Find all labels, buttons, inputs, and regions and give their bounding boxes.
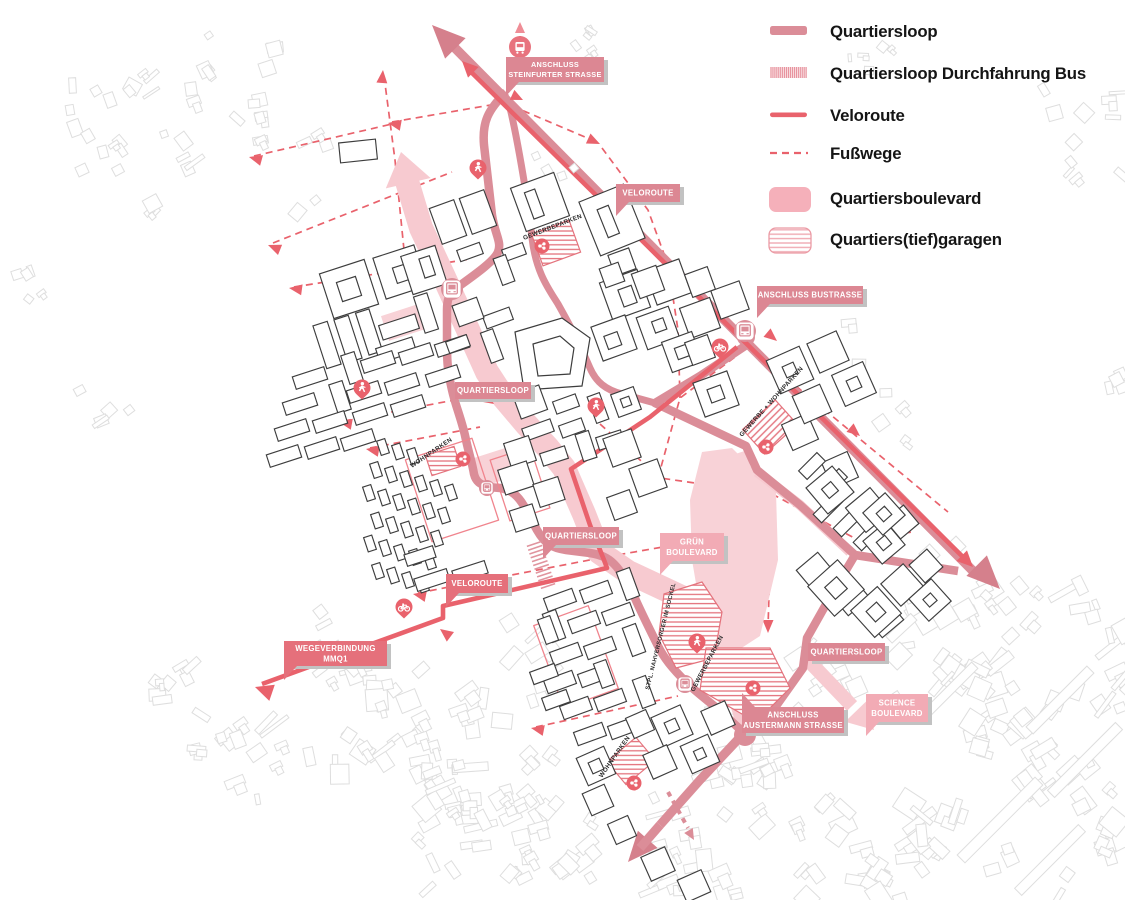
- svg-text:BOULEVARD: BOULEVARD: [871, 709, 923, 718]
- svg-text:ANSCHLUSS: ANSCHLUSS: [767, 711, 818, 720]
- svg-text:ANSCHLUSS BUSTRASSE: ANSCHLUSS BUSTRASSE: [758, 291, 862, 300]
- svg-text:Quartiersloop: Quartiersloop: [830, 22, 937, 41]
- svg-text:QUARTIERSLOOP: QUARTIERSLOOP: [811, 648, 883, 657]
- svg-text:Veloroute: Veloroute: [830, 106, 905, 125]
- svg-text:Quartiers(tief)garagen: Quartiers(tief)garagen: [830, 230, 1002, 249]
- svg-text:Quartiersloop Durchfahrung Bus: Quartiersloop Durchfahrung Bus: [830, 64, 1086, 83]
- svg-text:ANSCHLUSS: ANSCHLUSS: [531, 60, 579, 69]
- svg-text:VELOROUTE: VELOROUTE: [451, 579, 502, 588]
- svg-text:VELOROUTE: VELOROUTE: [622, 189, 673, 198]
- svg-text:QUARTIERSLOOP: QUARTIERSLOOP: [457, 386, 529, 395]
- svg-text:AUSTERMANN STRASSE: AUSTERMANN STRASSE: [743, 721, 843, 730]
- svg-text:GRÜN: GRÜN: [680, 538, 704, 547]
- svg-text:Quartiersboulevard: Quartiersboulevard: [830, 189, 981, 208]
- svg-text:SCIENCE: SCIENCE: [879, 699, 916, 708]
- svg-text:BOULEVARD: BOULEVARD: [666, 548, 718, 557]
- svg-text:Fußwege: Fußwege: [830, 144, 901, 163]
- svg-text:WEGEVERBINDUNG: WEGEVERBINDUNG: [295, 644, 375, 653]
- svg-text:QUARTIERSLOOP: QUARTIERSLOOP: [545, 532, 617, 541]
- svg-text:MMQ1: MMQ1: [323, 654, 348, 663]
- svg-text:STEINFURTER STRASSE: STEINFURTER STRASSE: [508, 70, 601, 79]
